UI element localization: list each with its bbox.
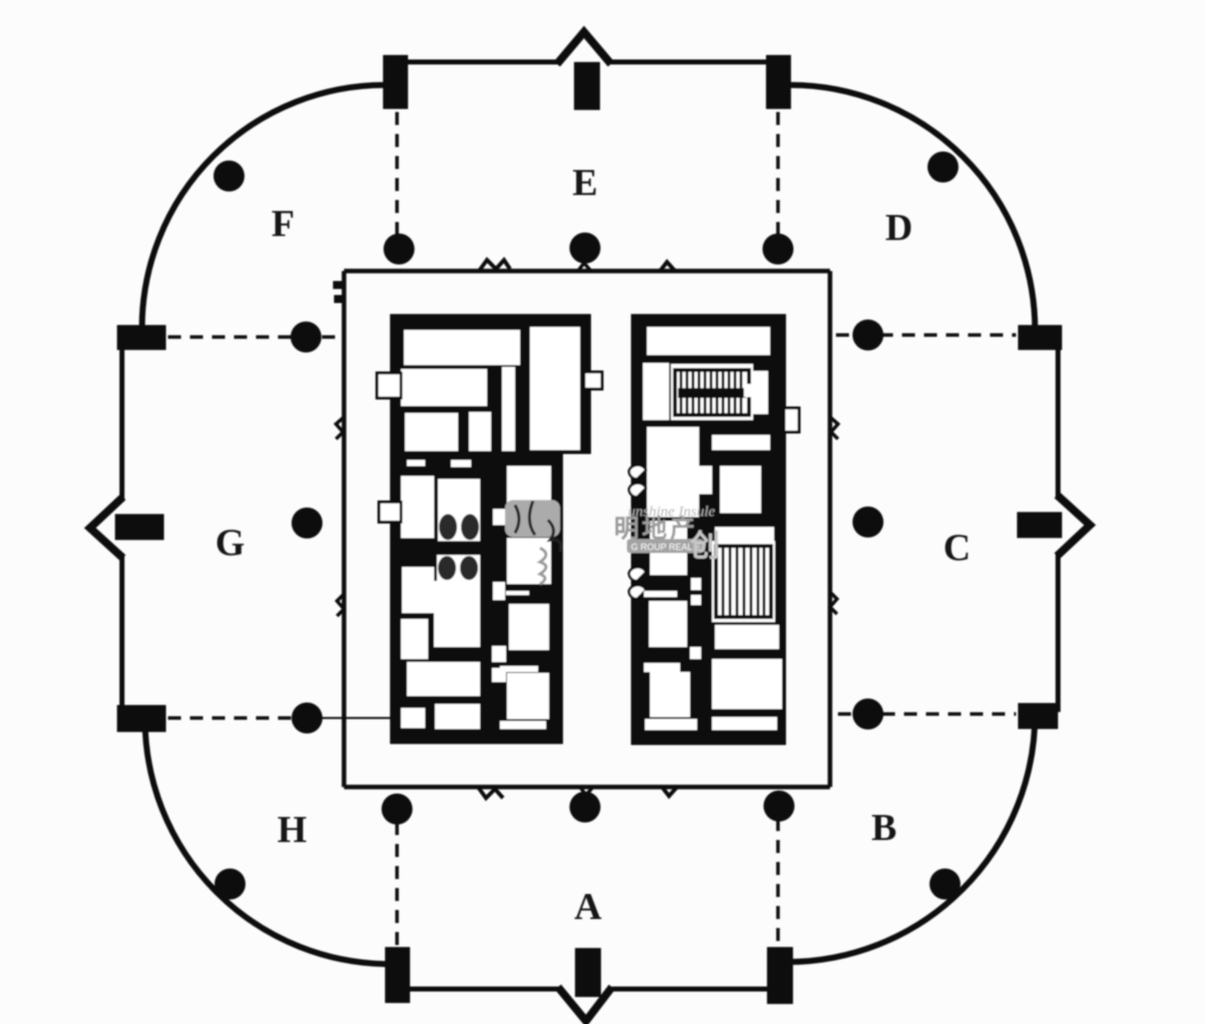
svg-text:G: G [215,522,245,564]
svg-text:C: C [943,527,970,569]
svg-text:F: F [271,203,294,245]
svg-text:B: B [871,807,896,849]
svg-text:A: A [574,886,602,928]
svg-text:D: D [885,207,912,249]
svg-text:明地产: 明地产 [614,515,698,543]
svg-text:H: H [277,809,307,851]
svg-text:E: E [572,162,597,204]
svg-text:创: 创 [689,530,720,563]
